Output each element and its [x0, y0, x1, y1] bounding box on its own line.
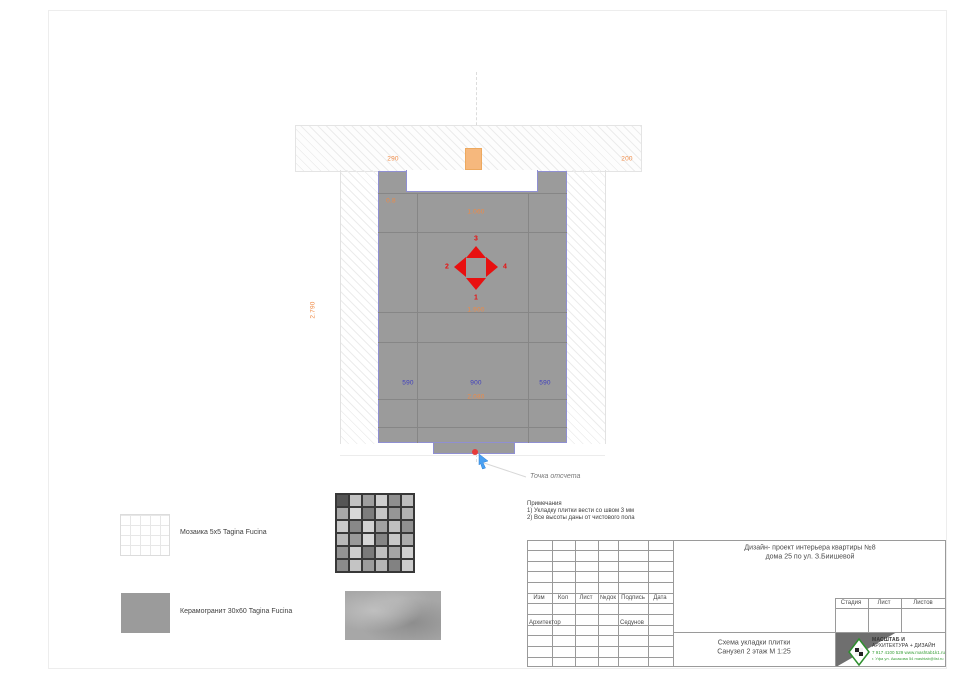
col-header-podpis: Подпись: [621, 595, 645, 601]
stage-header: Стадия: [841, 600, 861, 606]
col-header-kol: Кол: [558, 595, 568, 601]
legend-label-mosaic: Мозаика 5х5 Tagina Fucina: [180, 529, 267, 536]
dim-top-left: 290: [387, 156, 398, 163]
col-header-ndok: №док: [600, 595, 616, 601]
mosaic-photo: [335, 493, 415, 573]
role-label: Архитектор: [529, 620, 561, 626]
col-header-list: Лист: [579, 595, 592, 601]
notes-item-1: 1) Укладку плитки вести со швом 3 мм: [527, 508, 634, 515]
dim-center: 1.900: [467, 307, 484, 314]
level-mark: 0.8: [386, 198, 396, 205]
sheets-header: Листов: [913, 600, 933, 606]
legend-swatch-mosaic: [120, 514, 170, 556]
arrow-label-up: 3: [474, 236, 478, 243]
dim-niche: 1.060: [467, 209, 484, 216]
door-tab: [433, 443, 515, 454]
dim-top-right: 200: [621, 156, 632, 163]
legend-swatch-porcelain: [121, 593, 170, 633]
logo-text-line2: АРХИТЕКТУРА + ДИЗАЙН: [872, 643, 935, 649]
legend-label-porcelain: Керамогранит 30х60 Tagina Fucina: [180, 608, 292, 615]
logo-text-line4: г. Уфа ул. Аксакова 54 mashtab@list.ru: [872, 656, 943, 661]
notes-title: Примечания: [527, 501, 562, 508]
project-title-line1: Дизайн- проект интерьера квартиры №8: [744, 545, 875, 552]
sheet-name-line2: Санузел 2 этаж М 1:25: [717, 649, 791, 656]
niche: [406, 170, 538, 192]
arrow-label-down: 1: [474, 295, 478, 302]
logo-text-line3: 7 917 4100 529 www.mashtab1k1.ru: [872, 650, 945, 655]
stone-photo: [345, 591, 441, 640]
col-header-izm: Изм: [533, 595, 544, 601]
sheet-header: Лист: [877, 600, 890, 606]
drawing-sheet: 290 200 0.8 1.060 1.900 2.080 2.790 590 …: [0, 0, 960, 678]
project-title-line2: дома 25 по ул. З.Биишевой: [766, 554, 855, 561]
left-wall: [340, 170, 379, 444]
dim-bottom-left: 590: [402, 380, 413, 387]
vent-square: [465, 148, 482, 170]
architect-name: Седунов: [620, 620, 644, 626]
dim-bottom-mid: 900: [470, 380, 481, 387]
reference-point-label: Точка отсчета: [530, 473, 580, 480]
col-header-data: Дата: [653, 595, 666, 601]
dim-total: 2.080: [467, 394, 484, 401]
arrow-label-left: 2: [445, 264, 449, 271]
dim-bottom-right: 590: [539, 380, 550, 387]
dim-wall-height: 2.790: [310, 301, 317, 318]
floor-line: [340, 455, 605, 456]
sheet-name-line1: Схема укладки плитки: [718, 640, 791, 647]
right-wall: [567, 170, 606, 444]
arrow-label-right: 4: [503, 264, 507, 271]
notes-item-2: 2) Все высоты даны от чистового пола: [527, 515, 635, 522]
